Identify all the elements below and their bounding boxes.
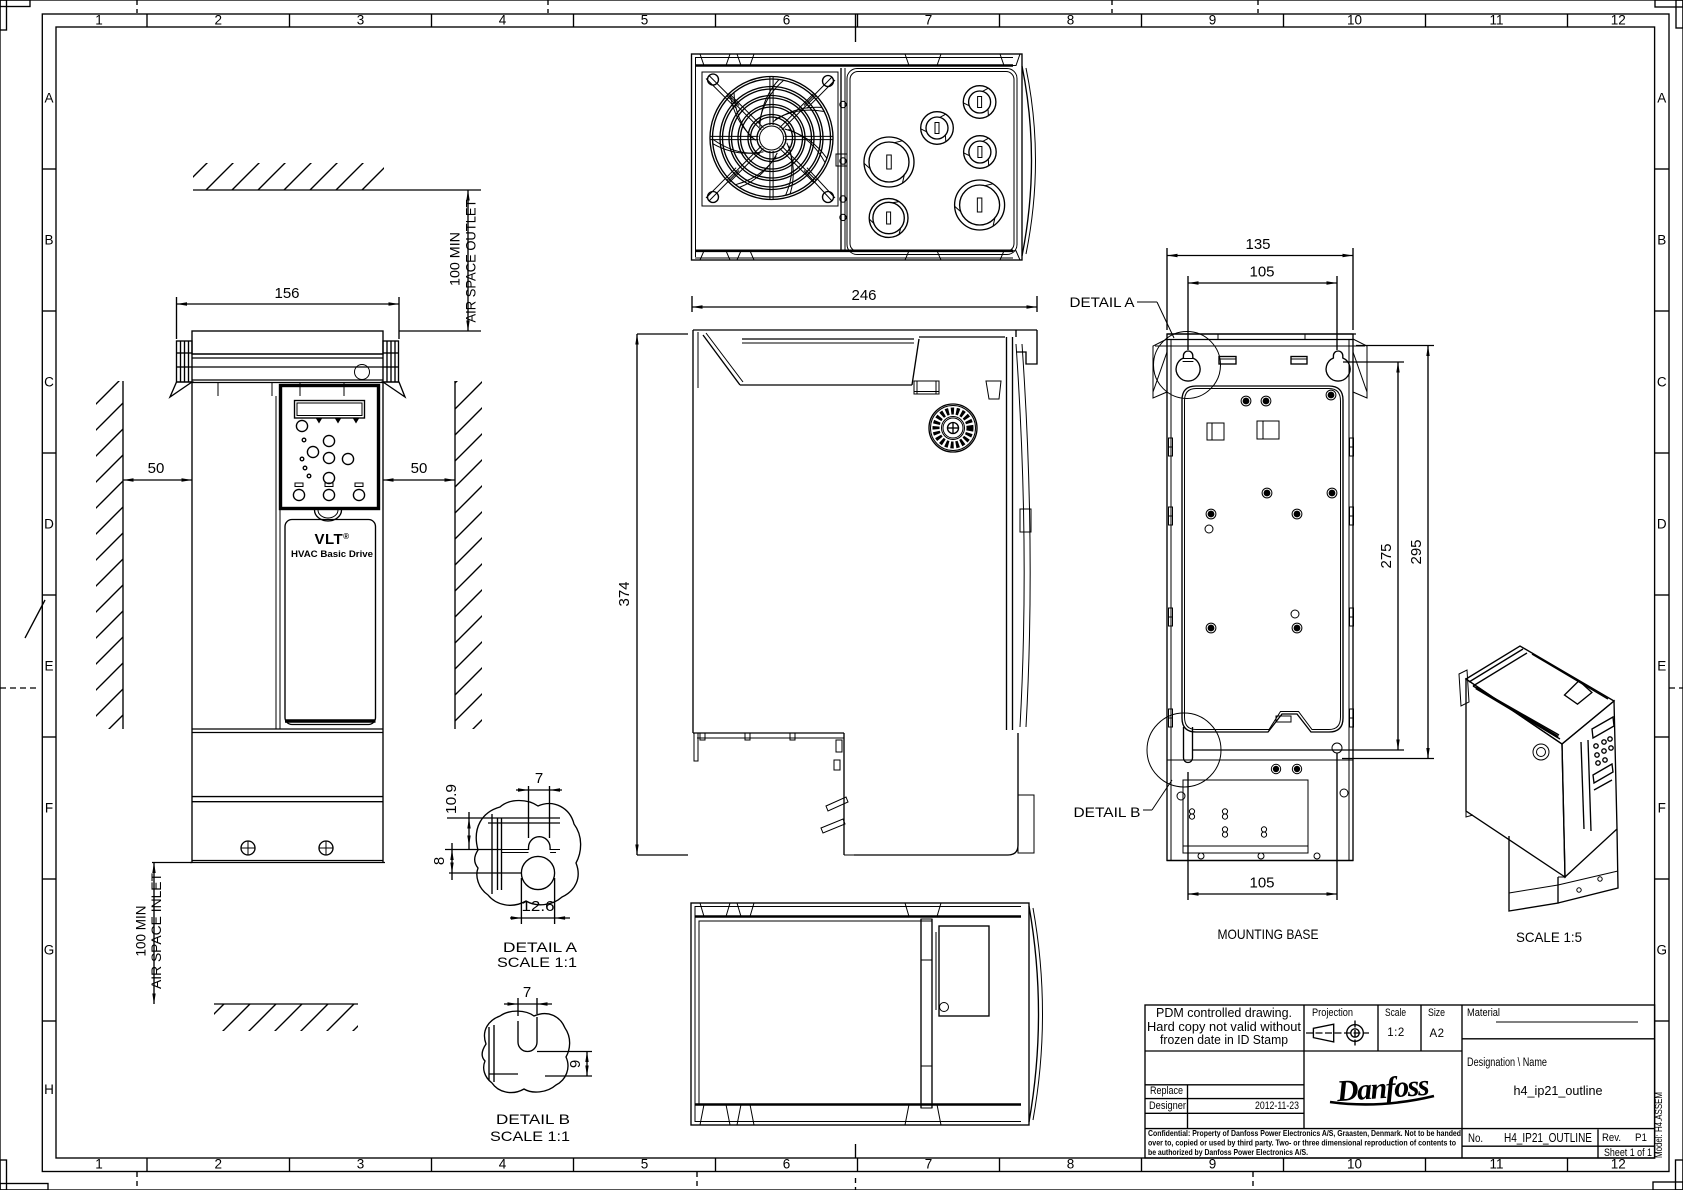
svg-text:SCALE 1:1: SCALE 1:1	[497, 954, 577, 970]
svg-text:9: 9	[1209, 1157, 1217, 1172]
svg-text:H4_IP21_OUTLINE: H4_IP21_OUTLINE	[1504, 1130, 1592, 1145]
svg-text:C: C	[44, 375, 54, 390]
svg-text:10: 10	[1347, 1157, 1362, 1172]
svg-text:over to, copied or used by thi: over to, copied or used by third party. …	[1148, 1139, 1456, 1148]
svg-text:12.6: 12.6	[522, 898, 555, 915]
svg-text:100 MIN: 100 MIN	[134, 906, 149, 957]
svg-text:6: 6	[783, 13, 791, 28]
svg-text:2: 2	[215, 13, 223, 28]
svg-text:11: 11	[1489, 13, 1503, 28]
svg-text:50: 50	[411, 460, 428, 477]
svg-text:9: 9	[1209, 13, 1217, 28]
svg-text:5: 5	[641, 13, 649, 28]
svg-text:SCALE 1:1: SCALE 1:1	[490, 1128, 570, 1144]
svg-text:6: 6	[783, 1157, 791, 1172]
svg-text:105: 105	[1249, 875, 1274, 892]
svg-text:7: 7	[925, 1157, 933, 1172]
svg-text:MOUNTING BASE: MOUNTING BASE	[1218, 926, 1319, 942]
svg-text:Scale: Scale	[1385, 1007, 1406, 1019]
svg-text:7: 7	[925, 13, 933, 28]
svg-text:No.: No.	[1468, 1131, 1483, 1145]
svg-text:E: E	[1657, 659, 1666, 674]
svg-text:Hard copy not valid without: Hard copy not valid without	[1147, 1020, 1302, 1034]
svg-text:Model: H4.ASSEM: Model: H4.ASSEM	[1653, 1092, 1665, 1158]
svg-text:Size: Size	[1428, 1007, 1445, 1019]
svg-text:Confidential: Property of Danf: Confidential: Property of Danfoss Power …	[1148, 1129, 1461, 1138]
svg-text:100 MIN: 100 MIN	[448, 232, 463, 286]
svg-text:AIR SPACE OUTLET: AIR SPACE OUTLET	[464, 200, 479, 323]
svg-text:C: C	[1657, 375, 1667, 390]
svg-text:8: 8	[1067, 13, 1075, 28]
svg-text:1:2: 1:2	[1387, 1027, 1405, 1039]
svg-text:135: 135	[1245, 236, 1270, 253]
svg-text:h4_ip21_outline: h4_ip21_outline	[1514, 1083, 1603, 1098]
svg-text:4: 4	[499, 1157, 507, 1172]
svg-text:be authorized by Danfoss Power: be authorized by Danfoss Power Electroni…	[1148, 1148, 1308, 1157]
svg-text:8: 8	[431, 857, 448, 865]
svg-text:2012-11-23: 2012-11-23	[1255, 1100, 1299, 1112]
svg-text:H: H	[44, 1082, 54, 1097]
svg-text:275: 275	[1378, 543, 1395, 568]
svg-text:A: A	[44, 91, 53, 106]
svg-text:Designer: Designer	[1149, 1100, 1186, 1112]
svg-text:Danfoss: Danfoss	[1335, 1069, 1430, 1108]
svg-text:246: 246	[851, 287, 876, 304]
svg-text:Designation \ Name: Designation \ Name	[1467, 1057, 1547, 1069]
svg-text:Rev.: Rev.	[1602, 1132, 1621, 1144]
svg-text:7: 7	[535, 770, 543, 787]
svg-text:B: B	[44, 233, 53, 248]
svg-text:Material: Material	[1467, 1007, 1500, 1019]
svg-text:G: G	[1657, 943, 1668, 958]
svg-text:DETAIL A: DETAIL A	[503, 939, 578, 955]
svg-text:3: 3	[357, 13, 365, 28]
svg-text:PDM controlled drawing.: PDM controlled drawing.	[1156, 1006, 1292, 1020]
svg-text:HVAC Basic Drive: HVAC Basic Drive	[291, 549, 373, 560]
svg-text:A2: A2	[1429, 1028, 1444, 1040]
svg-text:4: 4	[499, 13, 507, 28]
svg-text:Sheet 1 of 1: Sheet 1 of 1	[1604, 1147, 1652, 1159]
svg-text:Projection: Projection	[1312, 1007, 1353, 1019]
svg-text:12: 12	[1611, 13, 1626, 28]
svg-text:10: 10	[1347, 13, 1362, 28]
svg-text:F: F	[45, 801, 53, 816]
svg-text:G: G	[44, 943, 55, 958]
svg-text:VLT®: VLT®	[314, 531, 349, 548]
svg-text:105: 105	[1249, 264, 1274, 281]
svg-text:DETAIL B: DETAIL B	[1074, 804, 1141, 820]
svg-text:A: A	[1657, 91, 1666, 106]
svg-text:D: D	[1657, 517, 1667, 532]
svg-text:3: 3	[357, 1157, 365, 1172]
svg-text:D: D	[44, 517, 54, 532]
svg-text:AIR SPACE INLET: AIR SPACE INLET	[149, 873, 164, 989]
svg-text:156: 156	[274, 285, 299, 302]
svg-text:9: 9	[567, 1060, 584, 1068]
svg-text:11: 11	[1489, 1157, 1503, 1172]
svg-text:1: 1	[95, 13, 103, 28]
svg-text:F: F	[1658, 801, 1666, 816]
svg-text:B: B	[1657, 233, 1666, 248]
svg-text:DETAIL B: DETAIL B	[496, 1111, 570, 1127]
svg-text:8: 8	[1067, 1157, 1075, 1172]
svg-text:DETAIL A: DETAIL A	[1070, 294, 1136, 310]
svg-text:E: E	[44, 659, 53, 674]
svg-text:P1: P1	[1635, 1132, 1647, 1144]
svg-text:374: 374	[616, 581, 633, 606]
svg-text:295: 295	[1408, 539, 1425, 564]
svg-text:frozen date in ID Stamp: frozen date in ID Stamp	[1160, 1033, 1288, 1047]
svg-text:10.9: 10.9	[443, 784, 460, 814]
svg-text:SCALE 1:5: SCALE 1:5	[1516, 929, 1582, 945]
svg-text:2: 2	[215, 1157, 223, 1172]
svg-text:1: 1	[95, 1157, 103, 1172]
svg-text:7: 7	[523, 984, 531, 1001]
svg-text:Replace: Replace	[1150, 1085, 1183, 1097]
svg-text:50: 50	[148, 460, 165, 477]
svg-text:5: 5	[641, 1157, 649, 1172]
